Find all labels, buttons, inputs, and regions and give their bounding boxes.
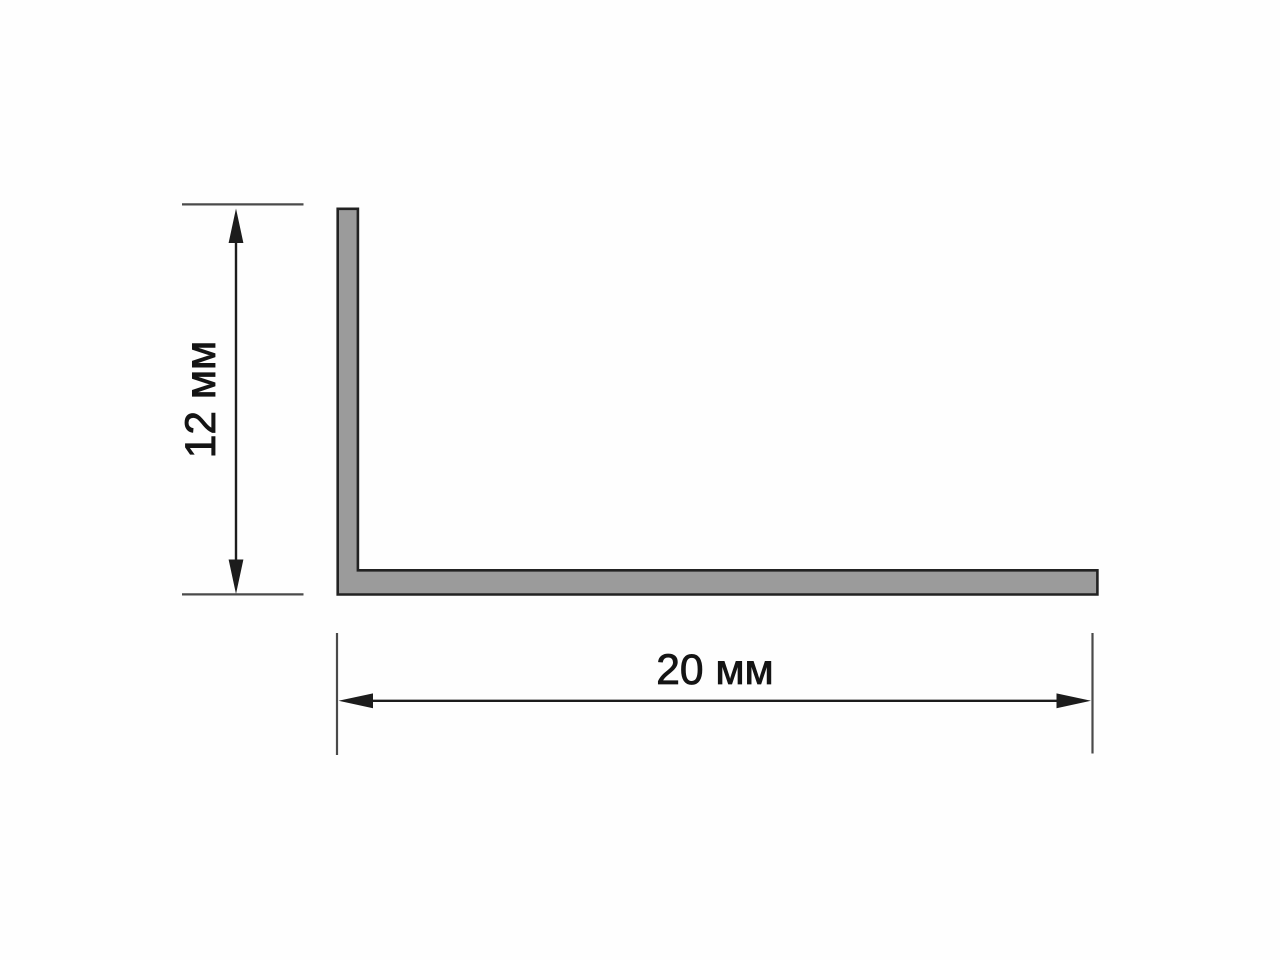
svg-text:20 мм: 20 мм <box>656 647 774 694</box>
svg-text:12 мм: 12 мм <box>178 341 225 459</box>
